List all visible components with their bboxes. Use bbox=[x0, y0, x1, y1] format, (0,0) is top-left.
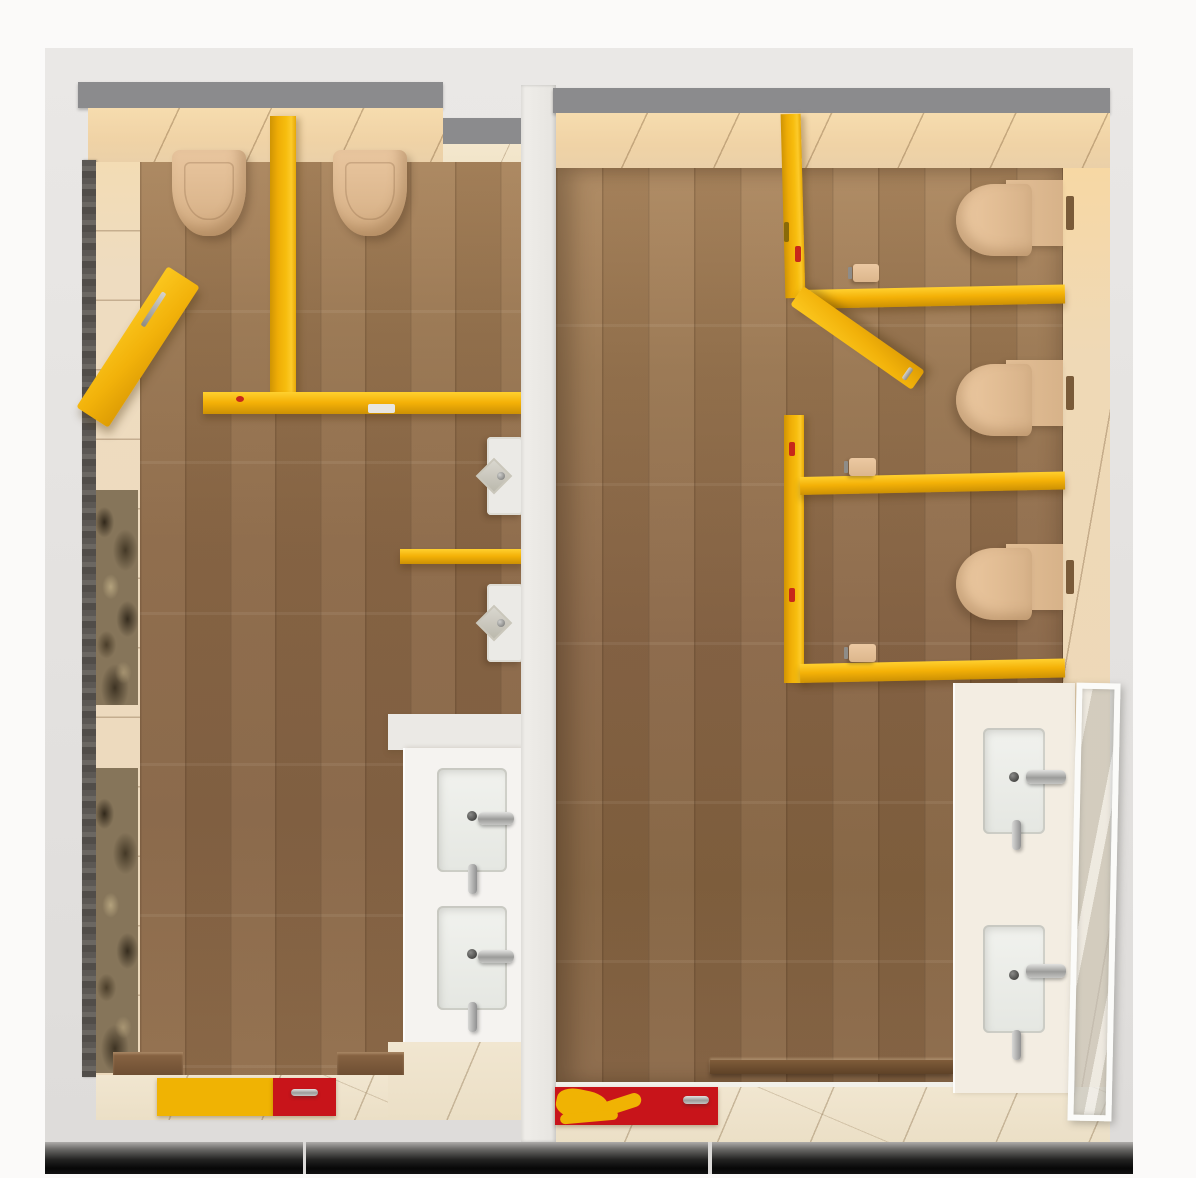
partition-latch bbox=[368, 404, 395, 413]
wall-mural-panel-2 bbox=[96, 768, 138, 1073]
toilet-right-1 bbox=[956, 184, 1032, 256]
basin-drain bbox=[1009, 772, 1019, 782]
faucet-right-1 bbox=[1026, 770, 1066, 784]
urinal-drain bbox=[497, 619, 505, 627]
stall-latch-slot bbox=[784, 222, 789, 242]
restroom-floorplan-render bbox=[0, 0, 1196, 1178]
toilet-paper-holder-1 bbox=[853, 264, 879, 282]
entry-mat-yellow bbox=[157, 1078, 273, 1116]
sink-basin-right-2 bbox=[983, 925, 1045, 1033]
stall-door-handle bbox=[902, 367, 914, 381]
stall-hinge-2 bbox=[789, 442, 795, 456]
urinal-privacy-shelf bbox=[400, 549, 523, 564]
spout-left-1 bbox=[468, 864, 477, 894]
entry-mat-red bbox=[273, 1078, 336, 1116]
stall-hinge-1 bbox=[795, 246, 801, 262]
toilet-right-2 bbox=[956, 364, 1032, 436]
flush-panel-2 bbox=[1066, 376, 1074, 410]
wood-step-1 bbox=[113, 1052, 183, 1075]
mat-handle-right bbox=[683, 1096, 709, 1104]
dividing-wall bbox=[521, 85, 556, 1142]
toilet-paper-holder-2 bbox=[849, 458, 876, 476]
left-under-counter-tiles bbox=[388, 1042, 521, 1120]
urinal-drain bbox=[497, 472, 505, 480]
left-wall-outer-edge bbox=[82, 160, 96, 1077]
toilet-paper-holder-3 bbox=[849, 644, 876, 662]
spout-right-2 bbox=[1012, 1030, 1021, 1060]
bottom-wall-shadow bbox=[45, 1142, 1133, 1174]
flush-panel-1 bbox=[1066, 196, 1074, 230]
left-counter-ledge bbox=[388, 714, 521, 750]
left-room-entry-wall-cap bbox=[441, 118, 521, 144]
left-stall-partition-horizontal bbox=[203, 392, 523, 414]
spout-left-2 bbox=[468, 1002, 477, 1032]
wood-step-2 bbox=[337, 1052, 404, 1075]
urinal-1 bbox=[487, 437, 523, 515]
urinal-2 bbox=[487, 584, 523, 662]
shadow-seam-1 bbox=[303, 1142, 306, 1174]
mat-handle-left bbox=[291, 1089, 318, 1096]
right-room-top-tile-wall bbox=[556, 113, 1110, 170]
basin-drain bbox=[1009, 970, 1019, 980]
left-stall-partition-vertical bbox=[270, 116, 296, 401]
left-room-top-wall-cap bbox=[78, 82, 443, 108]
right-room-top-wall-cap bbox=[553, 88, 1110, 113]
flush-panel-3 bbox=[1066, 560, 1074, 594]
basin-drain bbox=[467, 811, 477, 821]
toilet-right-3 bbox=[956, 548, 1032, 620]
wall-mural-panel-1 bbox=[96, 490, 138, 705]
faucet-right-2 bbox=[1026, 964, 1066, 978]
stall-hinge-3 bbox=[789, 588, 795, 602]
partition-hinge-mark bbox=[236, 396, 244, 402]
faucet-left-2 bbox=[478, 950, 514, 963]
basin-drain bbox=[467, 949, 477, 959]
faucet-left-1 bbox=[478, 812, 514, 825]
glass-door bbox=[1067, 683, 1120, 1122]
spout-right-1 bbox=[1012, 820, 1021, 850]
wood-bench bbox=[710, 1060, 953, 1074]
shadow-seam-2 bbox=[708, 1142, 712, 1174]
